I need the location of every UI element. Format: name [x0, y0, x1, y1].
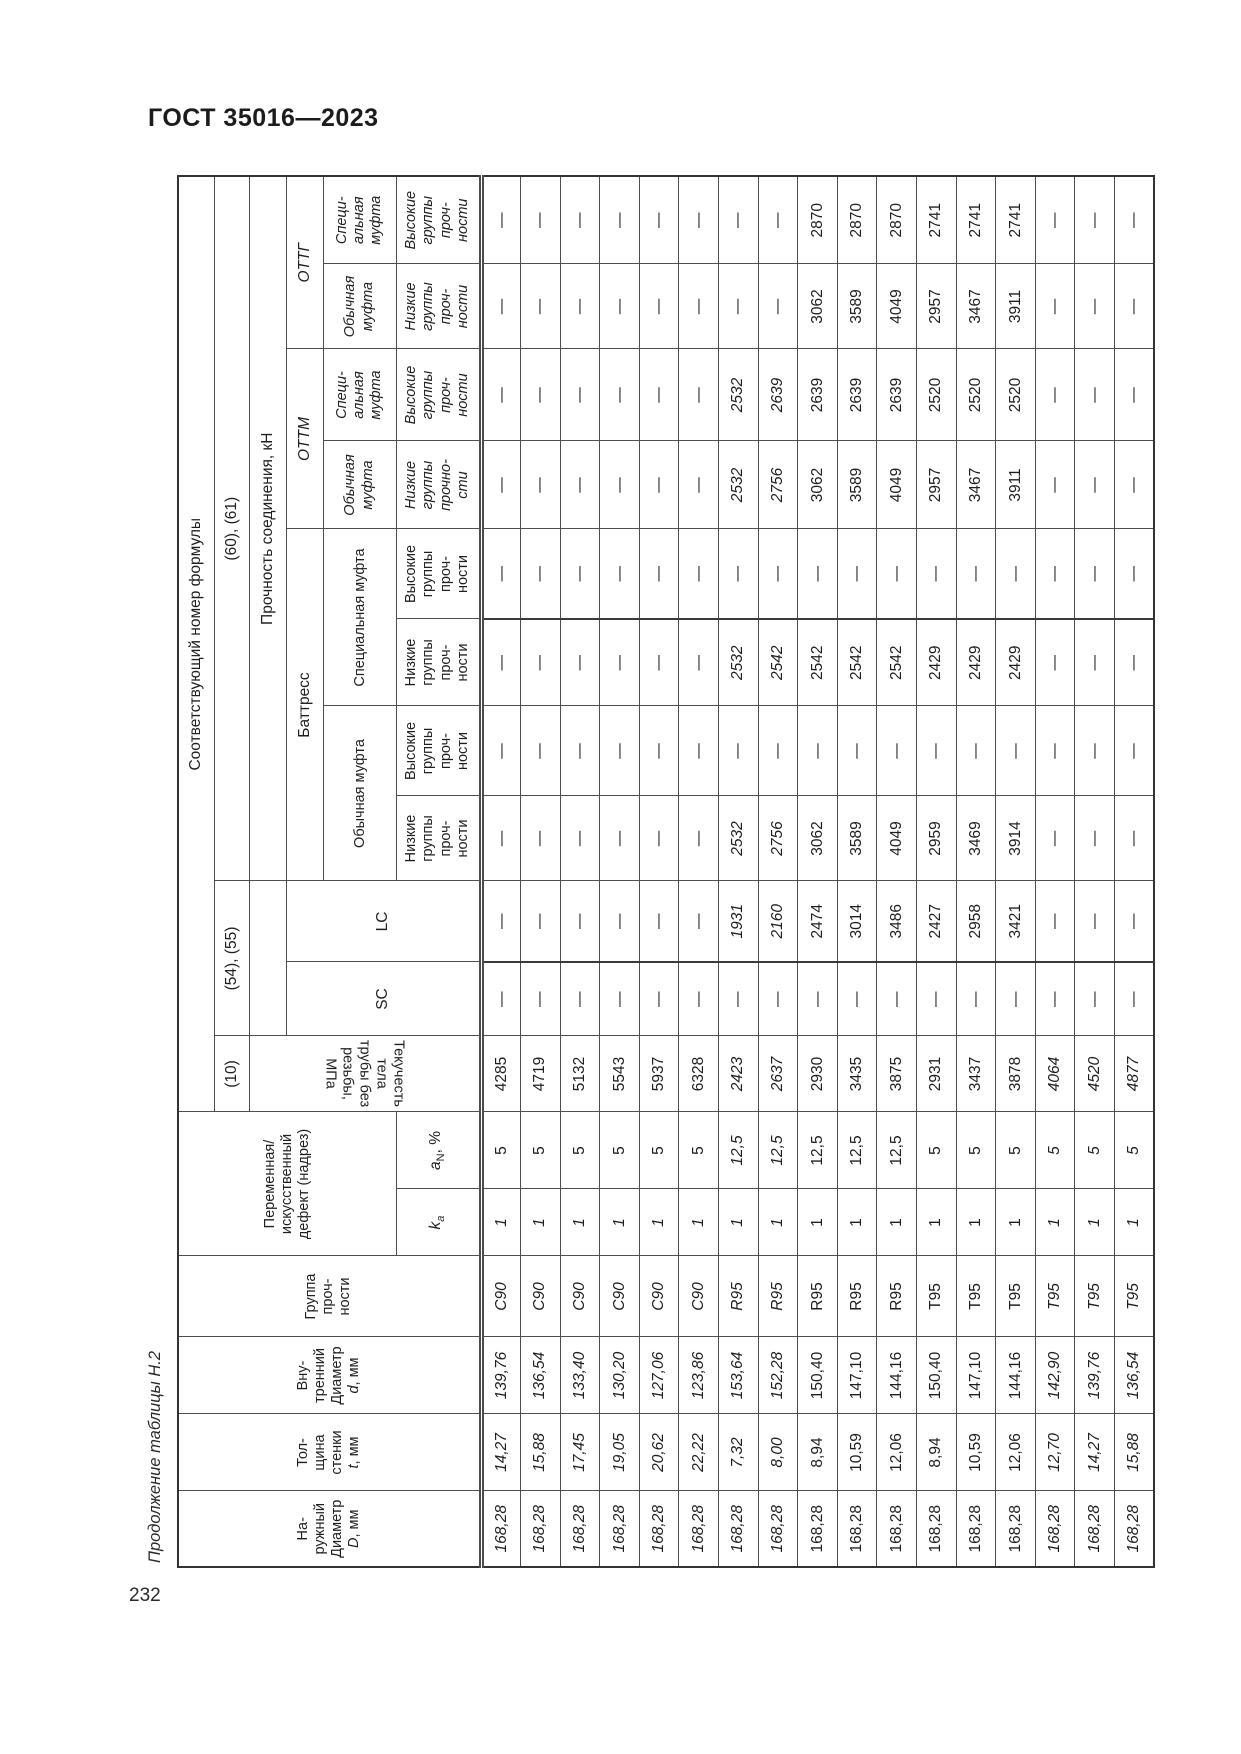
header-batt-usual-high-grades: Высокие группы проч- ности	[396, 706, 481, 796]
table-cell-ka: 1	[560, 1189, 600, 1256]
table-cell-ottm-usual-low: —	[1115, 441, 1155, 529]
header-inner-diameter: Вну- тренний Диаметр d, мм	[178, 1337, 481, 1414]
table-cell-strength-grade: R95	[798, 1256, 838, 1337]
table-cell-battress-special-high: —	[758, 529, 798, 619]
header-ottm: ОТТМ	[286, 349, 323, 529]
table-cell-ottm-special-high: 2520	[917, 349, 957, 441]
table-cell-ottg-special-high: —	[758, 176, 798, 264]
table-cell-battress-special-high: —	[639, 529, 679, 619]
table-cell-wall-thickness-t: 8,94	[917, 1414, 957, 1491]
table-cell-ka: 1	[837, 1189, 877, 1256]
table-cell-body-yield-MPa: 3875	[877, 1036, 917, 1112]
table-cell-inner-diameter-d: 153,64	[719, 1337, 759, 1414]
header-ottg-high-grades: Высокие группы проч- ности	[396, 176, 481, 264]
table-cell-outer-diameter-D: 168,28	[521, 1491, 561, 1567]
header-ottg-low-grades: Низкие группы проч- ности	[396, 264, 481, 349]
table-cell-ottm-special-high: —	[521, 349, 561, 441]
table-cell-wall-thickness-t: 22,22	[679, 1414, 719, 1491]
header-wall-thickness: Тол- щина стенки t, мм	[178, 1414, 481, 1491]
table-cell-outer-diameter-D: 168,28	[719, 1491, 759, 1567]
table-cell-ka: 1	[1115, 1189, 1155, 1256]
table-row: 168,2822,22123,86С90156328——————————	[679, 176, 719, 1567]
table-cell-body-yield-MPa: 3437	[956, 1036, 996, 1112]
table-cell-battress-usual-high: —	[1075, 706, 1115, 796]
table-cell-LC: 3486	[877, 881, 917, 962]
table-cell-body-yield-MPa: 6328	[679, 1036, 719, 1112]
table-cell-strength-grade: T95	[917, 1256, 957, 1337]
table-cell-ottm-special-high: —	[1035, 349, 1075, 441]
table-cell-ottg-usual-low: —	[481, 264, 521, 349]
table-cell-ottg-usual-low: —	[1115, 264, 1155, 349]
header-strength-grade: Группа проч- ности	[178, 1256, 481, 1337]
table-cell-wall-thickness-t: 15,88	[521, 1414, 561, 1491]
table-cell-wall-thickness-t: 19,05	[600, 1414, 640, 1491]
table-cell-ottm-special-high: 2520	[996, 349, 1036, 441]
table-cell-ottm-special-high: —	[639, 349, 679, 441]
table-cell-outer-diameter-D: 168,28	[1075, 1491, 1115, 1567]
table-cell-battress-special-low: 2542	[758, 619, 798, 706]
header-battress-special-coupling: Специальная муфта	[323, 529, 396, 706]
table-cell-outer-diameter-D: 168,28	[560, 1491, 600, 1567]
table-cell-wall-thickness-t: 12,06	[877, 1414, 917, 1491]
table-cell-outer-diameter-D: 168,28	[956, 1491, 996, 1567]
table-cell-inner-diameter-d: 139,76	[481, 1337, 521, 1414]
table-cell-ottg-special-high: 2870	[837, 176, 877, 264]
table-cell-ka: 1	[1035, 1189, 1075, 1256]
table-cell-battress-special-low: 2542	[877, 619, 917, 706]
table-cell-strength-grade: С90	[679, 1256, 719, 1337]
table-cell-inner-diameter-d: 139,76	[1075, 1337, 1115, 1414]
table-cell-LC: —	[521, 881, 561, 962]
table-cell-strength-grade: С90	[560, 1256, 600, 1337]
header-outer-diameter: На- ружный Диаметр D, мм	[178, 1491, 481, 1567]
table-cell-battress-usual-high: —	[798, 706, 838, 796]
table-cell-ottg-special-high: —	[600, 176, 640, 264]
table-cell-aN: 5	[1035, 1112, 1075, 1189]
table-cell-inner-diameter-d: 136,54	[521, 1337, 561, 1414]
table-cell-body-yield-MPa: 5937	[639, 1036, 679, 1112]
table-cell-wall-thickness-t: 15,88	[1115, 1414, 1155, 1491]
table-cell-strength-grade: С90	[639, 1256, 679, 1337]
table-cell-ka: 1	[917, 1189, 957, 1256]
table-cell-inner-diameter-d: 150,40	[917, 1337, 957, 1414]
document-page: { "page": { "header_title": "ГОСТ 35016—…	[0, 0, 1241, 1754]
table-cell-battress-usual-low: —	[481, 796, 521, 881]
table-cell-ottg-usual-low: 3062	[798, 264, 838, 349]
table-cell-LC: —	[600, 881, 640, 962]
header-battress-usual-coupling: Обычная муфта	[323, 706, 396, 881]
table-cell-battress-usual-high: —	[521, 706, 561, 796]
table-cell-aN: 5	[1075, 1112, 1115, 1189]
table-cell-battress-usual-high: —	[1035, 706, 1075, 796]
table-cell-SC: —	[481, 962, 521, 1036]
table-cell-outer-diameter-D: 168,28	[600, 1491, 640, 1567]
table-cell-body-yield-MPa: 5132	[560, 1036, 600, 1112]
header-ottm-special-coupling: Специ- альная муфта	[323, 349, 396, 441]
table-cell-ottg-usual-low: 4049	[877, 264, 917, 349]
table-cell-battress-special-low: —	[1075, 619, 1115, 706]
table-cell-battress-special-low: 2532	[719, 619, 759, 706]
data-table: На- ружный Диаметр D, мм Тол- щина стенк…	[177, 175, 1155, 1568]
table-cell-battress-special-high: —	[1075, 529, 1115, 619]
table-row: 168,2815,88136,54T95154877——————————	[1115, 176, 1155, 1567]
table-cell-inner-diameter-d: 144,16	[877, 1337, 917, 1414]
table-cell-battress-special-high: —	[1115, 529, 1155, 619]
table-cell-aN: 5	[1115, 1112, 1155, 1189]
table-cell-battress-usual-low: —	[1115, 796, 1155, 881]
table-cell-inner-diameter-d: 123,86	[679, 1337, 719, 1414]
header-ottg-special-coupling: Специ- альная муфта	[323, 176, 396, 264]
table-cell-wall-thickness-t: 20,62	[639, 1414, 679, 1491]
table-cell-battress-special-low: —	[639, 619, 679, 706]
table-cell-ka: 1	[877, 1189, 917, 1256]
table-cell-battress-usual-low: —	[600, 796, 640, 881]
table-row: 168,288,00152,28R95112,52637—21602756—25…	[758, 176, 798, 1567]
table-cell-battress-special-high: —	[481, 529, 521, 619]
header-ottg: ОТТГ	[286, 176, 323, 349]
table-cell-inner-diameter-d: 147,10	[956, 1337, 996, 1414]
table-cell-battress-usual-low: 2756	[758, 796, 798, 881]
table-cell-battress-usual-low: —	[560, 796, 600, 881]
table-cell-inner-diameter-d: 133,40	[560, 1337, 600, 1414]
table-cell-LC: 1931	[719, 881, 759, 962]
table-cell-outer-diameter-D: 168,28	[679, 1491, 719, 1567]
table-cell-ottm-special-high: 2639	[758, 349, 798, 441]
table-cell-LC: 2160	[758, 881, 798, 962]
table-cell-SC: —	[560, 962, 600, 1036]
table-cell-battress-usual-low: 4049	[877, 796, 917, 881]
table-cell-ottg-special-high: 2741	[917, 176, 957, 264]
table-cell-ottm-special-high: —	[600, 349, 640, 441]
table-cell-battress-special-high: —	[798, 529, 838, 619]
table-cell-battress-usual-high: —	[917, 706, 957, 796]
table-cell-wall-thickness-t: 12,06	[996, 1414, 1036, 1491]
table-cell-body-yield-MPa: 2423	[719, 1036, 759, 1112]
table-cell-SC: —	[600, 962, 640, 1036]
table-cell-SC: —	[521, 962, 561, 1036]
table-cell-outer-diameter-D: 168,28	[798, 1491, 838, 1567]
table-cell-battress-special-high: —	[956, 529, 996, 619]
table-cell-ottm-usual-low: —	[521, 441, 561, 529]
table-cell-ottg-usual-low: —	[679, 264, 719, 349]
table-cell-battress-usual-low: 3062	[798, 796, 838, 881]
table-cell-battress-special-high: —	[521, 529, 561, 619]
table-cell-ka: 1	[481, 1189, 521, 1256]
table-cell-battress-special-low: —	[1115, 619, 1155, 706]
table-cell-ottg-usual-low: 2957	[917, 264, 957, 349]
table-cell-LC: 2958	[956, 881, 996, 962]
table-cell-SC: —	[996, 962, 1036, 1036]
table-cell-ka: 1	[639, 1189, 679, 1256]
table-cell-battress-special-low: 2429	[996, 619, 1036, 706]
table-cell-body-yield-MPa: 4520	[1075, 1036, 1115, 1112]
table-cell-ottm-usual-low: 3062	[798, 441, 838, 529]
table-cell-SC: —	[1115, 962, 1155, 1036]
table-cell-outer-diameter-D: 168,28	[639, 1491, 679, 1567]
table-cell-SC: —	[798, 962, 838, 1036]
table-cell-outer-diameter-D: 168,28	[758, 1491, 798, 1567]
table-cell-body-yield-MPa: 4285	[481, 1036, 521, 1112]
table-cell-LC: —	[1115, 881, 1155, 962]
table-cell-LC: —	[481, 881, 521, 962]
table-cell-inner-diameter-d: 144,16	[996, 1337, 1036, 1414]
header-batt-special-high-grades: Высокие группы проч- ности	[396, 529, 481, 619]
table-row: 168,2812,06144,16R95112,53875—34864049—2…	[877, 176, 917, 1567]
table-cell-ottg-usual-low: —	[1035, 264, 1075, 349]
table-cell-ottg-special-high: —	[1075, 176, 1115, 264]
table-cell-wall-thickness-t: 17,45	[560, 1414, 600, 1491]
table-cell-battress-special-low: 2429	[956, 619, 996, 706]
header-formula-number: Соответствующий номер формулы	[178, 176, 214, 1112]
table-cell-strength-grade: С90	[521, 1256, 561, 1337]
table-row: 168,2815,88136,54С90154719——————————	[521, 176, 561, 1567]
table-cell-SC: —	[1035, 962, 1075, 1036]
table-cell-ka: 1	[719, 1189, 759, 1256]
table-cell-battress-usual-high: —	[639, 706, 679, 796]
table-cell-wall-thickness-t: 14,27	[481, 1414, 521, 1491]
table-cell-wall-thickness-t: 7,32	[719, 1414, 759, 1491]
document-title: ГОСТ 35016—2023	[148, 104, 379, 133]
table-cell-ottg-special-high: —	[481, 176, 521, 264]
table-row: 168,2820,62127,06С90155937——————————	[639, 176, 679, 1567]
table-cell-ottm-special-high: 2639	[877, 349, 917, 441]
table-cell-ka: 1	[996, 1189, 1036, 1256]
table-cell-SC: —	[758, 962, 798, 1036]
table-cell-ka: 1	[600, 1189, 640, 1256]
table-cell-battress-special-high: —	[917, 529, 957, 619]
table-cell-body-yield-MPa: 5543	[600, 1036, 640, 1112]
table-cell-ka: 1	[798, 1189, 838, 1256]
table-cell-battress-special-low: —	[600, 619, 640, 706]
table-cell-SC: —	[837, 962, 877, 1036]
header-ottm-high-grades: Высокие группы проч- ности	[396, 349, 481, 441]
table-cell-outer-diameter-D: 168,28	[917, 1491, 957, 1567]
table-row: 168,2810,59147,10T95153437—29583469—2429…	[956, 176, 996, 1567]
table-cell-body-yield-MPa: 3878	[996, 1036, 1036, 1112]
table-cell-aN: 5	[481, 1112, 521, 1189]
table-cell-SC: —	[917, 962, 957, 1036]
table-cell-aN: 12,5	[877, 1112, 917, 1189]
table-cell-ottm-usual-low: 3589	[837, 441, 877, 529]
header-ottm-usual-coupling: Обычная муфта	[323, 441, 396, 529]
table-cell-strength-grade: С90	[481, 1256, 521, 1337]
table-cell-aN: 5	[956, 1112, 996, 1189]
table-cell-battress-special-high: —	[560, 529, 600, 619]
header-ottm-low-grades: Низкие группы прочно- сти	[396, 441, 481, 529]
table-cell-strength-grade: T95	[996, 1256, 1036, 1337]
header-artificial-defect: Переменная/ искусственный дефект (надрез…	[178, 1112, 396, 1256]
table-cell-ottm-usual-low: —	[679, 441, 719, 529]
table-cell-battress-usual-low: 3589	[837, 796, 877, 881]
table-row: 168,287,32153,64R95112,52423—19312532—25…	[719, 176, 759, 1567]
table-cell-ottm-usual-low: —	[1035, 441, 1075, 529]
table-cell-outer-diameter-D: 168,28	[877, 1491, 917, 1567]
table-row: 168,2812,06144,16T95153878—34213914—2429…	[996, 176, 1036, 1567]
table-cell-ottm-usual-low: 2957	[917, 441, 957, 529]
table-cell-battress-usual-low: 2532	[719, 796, 759, 881]
header-formula-10: (10)	[214, 1036, 249, 1112]
table-cell-aN: 5	[639, 1112, 679, 1189]
table-cell-LC: —	[560, 881, 600, 962]
table-cell-ottg-special-high: —	[639, 176, 679, 264]
table-cell-ottm-usual-low: 2756	[758, 441, 798, 529]
table-cell-body-yield-MPa: 2930	[798, 1036, 838, 1112]
table-cell-battress-special-high: —	[1035, 529, 1075, 619]
table-cell-ottm-usual-low: —	[1075, 441, 1115, 529]
table-cell-ottg-usual-low: —	[719, 264, 759, 349]
header-formula-54-55: (54), (55)	[214, 881, 249, 1036]
table-cell-ka: 1	[679, 1189, 719, 1256]
table-cell-aN: 5	[600, 1112, 640, 1189]
table-row: 168,288,94150,40R95112,52930—24743062—25…	[798, 176, 838, 1567]
table-cell-outer-diameter-D: 168,28	[1035, 1491, 1075, 1567]
table-cell-ottg-usual-low: —	[521, 264, 561, 349]
table-cell-battress-usual-low: 3469	[956, 796, 996, 881]
table-cell-body-yield-MPa: 3435	[837, 1036, 877, 1112]
table-cell-battress-usual-low: —	[1075, 796, 1115, 881]
table-cell-outer-diameter-D: 168,28	[481, 1491, 521, 1567]
table-cell-aN: 5	[996, 1112, 1036, 1189]
table-cell-outer-diameter-D: 168,28	[837, 1491, 877, 1567]
table-cell-battress-special-high: —	[877, 529, 917, 619]
table-cell-battress-usual-high: —	[481, 706, 521, 796]
table-cell-body-yield-MPa: 4719	[521, 1036, 561, 1112]
table-cell-SC: —	[679, 962, 719, 1036]
table-cell-battress-usual-low: 3914	[996, 796, 1036, 881]
table-cell-ka: 1	[521, 1189, 561, 1256]
table-row: 168,288,94150,40T95152931—24272959—2429—…	[917, 176, 957, 1567]
header-connection-strength: Прочность соединения, кН	[249, 176, 286, 881]
table-cell-ottg-special-high: —	[521, 176, 561, 264]
table-cell-aN: 5	[917, 1112, 957, 1189]
table-cell-ottm-special-high: 2520	[956, 349, 996, 441]
table-cell-battress-special-low: 2542	[837, 619, 877, 706]
table-cell-ottg-usual-low: —	[758, 264, 798, 349]
table-row: 168,2814,27139,76T95154520——————————	[1075, 176, 1115, 1567]
table-cell-battress-usual-high: —	[837, 706, 877, 796]
table-cell-ottg-special-high: 2870	[877, 176, 917, 264]
table-cell-battress-usual-low: —	[679, 796, 719, 881]
table-cell-aN: 12,5	[758, 1112, 798, 1189]
table-cell-strength-grade: T95	[956, 1256, 996, 1337]
table-cell-SC: —	[719, 962, 759, 1036]
table-cell-LC: —	[679, 881, 719, 962]
table-cell-ottm-special-high: —	[1115, 349, 1155, 441]
table-cell-LC: 2474	[798, 881, 838, 962]
table-cell-ottm-usual-low: —	[560, 441, 600, 529]
header-ottg-usual-coupling: Обычная муфта	[323, 264, 396, 349]
table-cell-LC: —	[1075, 881, 1115, 962]
table-cell-ottm-special-high: 2639	[798, 349, 838, 441]
table-cell-strength-grade: R95	[719, 1256, 759, 1337]
table-cell-wall-thickness-t: 14,27	[1075, 1414, 1115, 1491]
table-cell-battress-special-low: 2429	[917, 619, 957, 706]
table-cell-LC: 2427	[917, 881, 957, 962]
rotated-table-container: На- ружный Диаметр D, мм Тол- щина стенк…	[177, 177, 1153, 1568]
table-cell-battress-usual-high: —	[956, 706, 996, 796]
table-cell-battress-usual-high: —	[560, 706, 600, 796]
table-cell-LC: 3014	[837, 881, 877, 962]
table-cell-SC: —	[956, 962, 996, 1036]
table-cell-ottg-special-high: —	[679, 176, 719, 264]
table-cell-inner-diameter-d: 130,20	[600, 1337, 640, 1414]
table-caption: Продолжение таблицы Н.2	[146, 1351, 165, 1563]
table-cell-battress-special-high: —	[679, 529, 719, 619]
table-cell-LC: —	[639, 881, 679, 962]
table-cell-body-yield-MPa: 2931	[917, 1036, 957, 1112]
header-ka: kа	[396, 1189, 481, 1256]
table-cell-ottg-usual-low: —	[639, 264, 679, 349]
header-body-yield: Текучесть тела трубы без резьбы, МПа	[249, 1036, 481, 1112]
table-cell-inner-diameter-d: 147,10	[837, 1337, 877, 1414]
table-cell-ottg-special-high: —	[560, 176, 600, 264]
table-cell-ottg-special-high: 2741	[996, 176, 1036, 264]
header-batt-special-low-grades: Низкие группы проч- ности	[396, 619, 481, 706]
table-cell-wall-thickness-t: 10,59	[837, 1414, 877, 1491]
table-cell-battress-usual-low: 2959	[917, 796, 957, 881]
table-cell-strength-grade: С90	[600, 1256, 640, 1337]
table-cell-strength-grade: R95	[758, 1256, 798, 1337]
table-cell-wall-thickness-t: 10,59	[956, 1414, 996, 1491]
table-cell-aN: 5	[521, 1112, 561, 1189]
table-cell-inner-diameter-d: 136,54	[1115, 1337, 1155, 1414]
table-cell-inner-diameter-d: 127,06	[639, 1337, 679, 1414]
table-cell-wall-thickness-t: 8,94	[798, 1414, 838, 1491]
header-formula-60-61: (60), (61)	[214, 176, 249, 881]
table-cell-battress-usual-low: —	[1035, 796, 1075, 881]
table-cell-battress-special-low: —	[521, 619, 561, 706]
table-cell-inner-diameter-d: 142,90	[1035, 1337, 1075, 1414]
table-cell-battress-special-low: 2542	[798, 619, 838, 706]
table-cell-ottg-usual-low: —	[600, 264, 640, 349]
header-batt-usual-low-grades: Низкие группы проч- ности	[396, 796, 481, 881]
table-cell-battress-usual-high: —	[1115, 706, 1155, 796]
table-cell-ka: 1	[758, 1189, 798, 1256]
table-cell-ka: 1	[1075, 1189, 1115, 1256]
table-cell-body-yield-MPa: 2637	[758, 1036, 798, 1112]
header-an: aN, %	[396, 1112, 481, 1189]
table-cell-ottg-special-high: —	[1115, 176, 1155, 264]
table-cell-ottg-usual-low: 3911	[996, 264, 1036, 349]
table-cell-aN: 12,5	[719, 1112, 759, 1189]
table-cell-strength-grade: T95	[1115, 1256, 1155, 1337]
table-cell-ottm-special-high: —	[679, 349, 719, 441]
table-cell-ottg-special-high: —	[719, 176, 759, 264]
table-cell-ottm-special-high: 2639	[837, 349, 877, 441]
table-cell-battress-special-high: —	[600, 529, 640, 619]
table-cell-battress-usual-high: —	[758, 706, 798, 796]
table-cell-aN: 12,5	[837, 1112, 877, 1189]
table-cell-ottg-usual-low: 3589	[837, 264, 877, 349]
table-cell-body-yield-MPa: 4064	[1035, 1036, 1075, 1112]
table-cell-strength-grade: T95	[1035, 1256, 1075, 1337]
table-cell-body-yield-MPa: 4877	[1115, 1036, 1155, 1112]
table-cell-outer-diameter-D: 168,28	[1115, 1491, 1155, 1567]
table-cell-strength-grade: R95	[837, 1256, 877, 1337]
table-row: 168,2814,27139,76С90154285——————————	[481, 176, 521, 1567]
table-cell-battress-usual-high: —	[600, 706, 640, 796]
header-battress: Баттресс	[286, 529, 323, 881]
table-cell-ottm-special-high: —	[1075, 349, 1115, 441]
table-cell-strength-grade: R95	[877, 1256, 917, 1337]
table-cell-battress-special-high: —	[837, 529, 877, 619]
table-cell-ottm-usual-low: —	[600, 441, 640, 529]
table-cell-ottg-special-high: 2870	[798, 176, 838, 264]
table-cell-battress-special-low: —	[481, 619, 521, 706]
table-cell-ottm-special-high: 2532	[719, 349, 759, 441]
table-cell-SC: —	[877, 962, 917, 1036]
header-lc: LC	[286, 881, 481, 962]
